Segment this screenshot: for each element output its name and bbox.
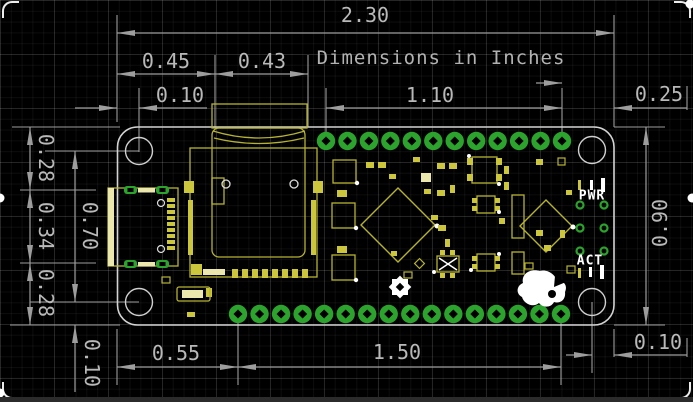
dim-left-edge-to-first-bottom-pad: 0.55 [152,343,200,363]
dim-top-edge-to-usb: 0.28 [36,134,56,182]
canvas-border-corner [2,1,19,18]
dim-hole-to-hole-vertical: 0.70 [80,202,100,250]
dim-board-width: 2.30 [341,5,389,25]
pcb-dimensional-drawing: Dimensions in Inches 2.30 0.45 0.43 0.10… [0,0,693,402]
pwr-label: PWR [579,189,605,204]
dim-hole-to-bottom-edge: 0.10 [82,339,102,387]
canvas-edge-strip [0,397,693,402]
pin1-dot-second-ic [571,225,576,230]
dimension-lines [30,33,687,392]
dim-usb-height: 0.34 [36,202,56,250]
dim-usb-to-bottom-edge: 0.28 [36,269,56,317]
usb-shield-pads [124,186,169,268]
dim-last-pad-to-right-edge: 0.25 [635,84,683,104]
via-grid [577,202,608,255]
top-header-pads [317,132,571,150]
dim-top-header-span: 1.10 [406,85,454,105]
resize-handle[interactable] [688,194,693,203]
small-ics [432,154,524,278]
dim-bottom-header-span: 1.50 [373,342,421,362]
dim-board-height: 0.90 [650,199,670,247]
resize-handle[interactable] [686,0,693,9]
dim-hole-to-right-edge: 0.10 [634,332,682,352]
bottom-header-pads [229,305,570,323]
dim-battery-connector-width: 0.43 [238,51,286,71]
reset-button [177,287,210,301]
dim-left-edge-to-hole: 0.10 [156,85,204,105]
dim-left-to-battery-connector: 0.45 [142,51,190,71]
battery-connector [184,104,323,278]
usb-pin-strip [167,198,175,250]
act-led-icon [589,267,592,277]
main-ic-diamond [361,188,572,262]
adafruit-logo-icon [518,270,566,306]
usb-connector [108,186,178,268]
act-label: ACT [577,254,603,269]
units-note: Dimensions in Inches [317,47,566,69]
sprocket-icon [389,276,412,299]
mounting-hole-top-right [579,137,606,164]
capacitor-column [332,160,359,282]
